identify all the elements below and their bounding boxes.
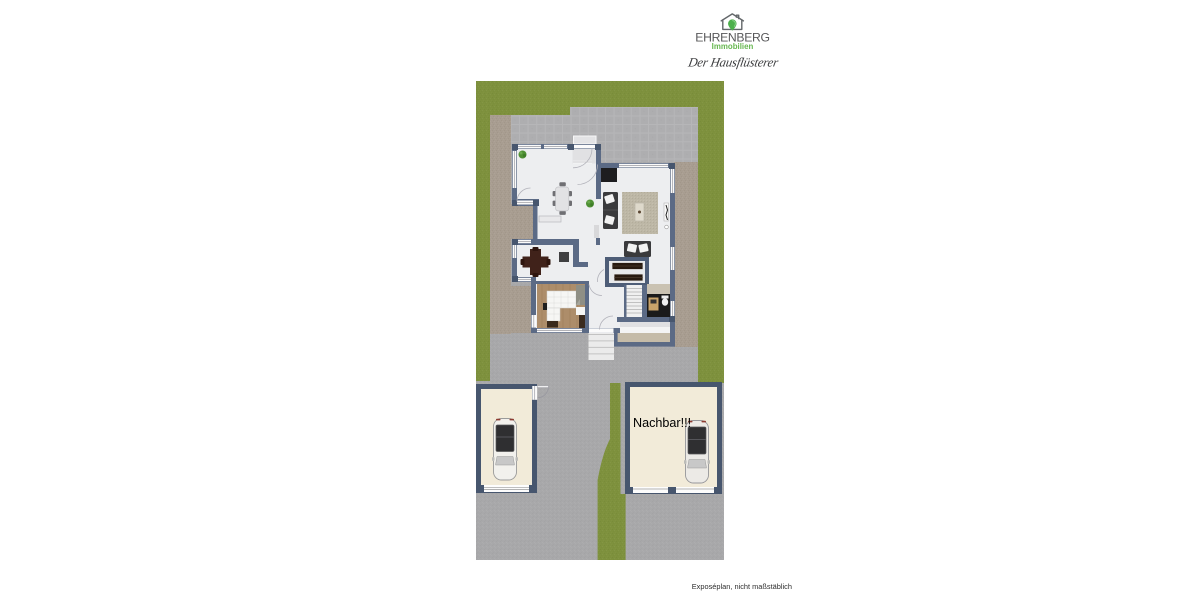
- svg-text:Der Hausflüsterer: Der Hausflüsterer: [686, 55, 780, 69]
- svg-text:Immobilien: Immobilien: [712, 42, 754, 51]
- svg-text:Nachbar!!!: Nachbar!!!: [633, 416, 691, 430]
